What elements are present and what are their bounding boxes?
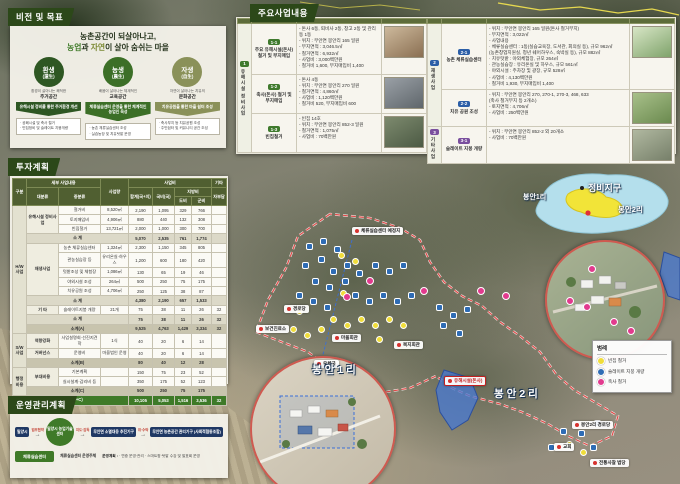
- invest-cell: 5,070: [129, 234, 153, 243]
- invest-cell: 657: [175, 296, 192, 305]
- slate-marker: [436, 304, 443, 311]
- project-subname: 빈집철거: [254, 134, 294, 140]
- map-facility-label: 봉안2리 경로당: [572, 421, 613, 429]
- map-facility-label: 복지회관: [394, 341, 423, 349]
- invest-cell: 1,000: [153, 224, 175, 233]
- invest-cell: 2,300: [129, 243, 153, 252]
- invest-cell: [212, 333, 227, 348]
- vision-columns: 환생(還生)환경이 살아나는 쾌적한주거공간유해시설 정비를 통한 주거환경 개…: [16, 57, 220, 140]
- invest-cell: 1,324㎡: [101, 243, 129, 252]
- ops-bottom: 체류실습센터 체류실습센터 운영주체 운영계획 : · 연중 운영·관리 · 스…: [15, 451, 223, 462]
- slate-marker: [320, 238, 327, 245]
- task-item: · 빈집정비 및 슬레이트 지붕개량: [20, 126, 77, 131]
- invest-cell: 20: [153, 349, 175, 358]
- vacant-marker: [352, 258, 359, 265]
- col-etc: 기타: [212, 179, 227, 188]
- invest-row: 기 타슬레이트지붕 개량21개7538112632: [13, 305, 227, 314]
- ops-flow: 밀양시업무협약→밀양시 농업기술센터지도·감독→무안면 소멸대응 추진기구위·수…: [15, 418, 223, 446]
- ops-operator-note: 체류실습센터 운영주체: [60, 454, 96, 459]
- project-photo-cell: [630, 24, 675, 90]
- invest-cell: 12: [175, 358, 192, 367]
- invest-cell: 180: [175, 252, 192, 267]
- invest-cell: 26: [192, 305, 212, 314]
- invest-cell: [101, 368, 129, 377]
- projects-panel: 1유해시설 정비사업1-1주요 유해시설(돈사) 철거 및 부지매입- 돈사 6…: [236, 17, 676, 154]
- slate-marker: [400, 262, 407, 269]
- pillar-main: 농생: [112, 64, 124, 74]
- flow-arrow: 위·수탁→: [138, 427, 149, 438]
- vacant-marker: [344, 322, 351, 329]
- invest-cell: 19: [175, 268, 192, 277]
- slate-marker: [464, 306, 471, 313]
- pillar-task-list: · 공폐시설 및 축사 철거· 빈집정비 및 슬레이트 지붕개량: [16, 118, 81, 135]
- invest-cell: 소계(C): [27, 386, 129, 395]
- slate-marker: [578, 430, 585, 437]
- vacant-marker: [580, 449, 587, 456]
- invest-cell: 38: [153, 305, 175, 314]
- vacant-marker: [400, 322, 407, 329]
- slate-marker: [296, 292, 303, 299]
- project-photo: [632, 92, 672, 124]
- vision-pillar: 자생(自生)자연이 살아나는 치유의문화공간치유공원을 통한 마을 쉼터 조성·…: [155, 57, 220, 140]
- pillar-space-name: 주거공간: [31, 94, 66, 100]
- col-qty: 사업량: [101, 179, 129, 206]
- minimap-village1-label: 봉안1리: [523, 192, 546, 202]
- legend-item: 빈집 철거: [597, 357, 667, 365]
- invest-cell: H/W 사업: [13, 206, 27, 334]
- vision-pillar-circle: 환생(還生): [34, 57, 64, 87]
- invest-cell: 125: [153, 287, 175, 296]
- invest-cell: 13,721㎡: [101, 224, 129, 233]
- vision-pillar: 농생(農生)배움이 살아나는 체계적인교육공간체류실습센터 운영을 통한 체계적…: [85, 57, 150, 140]
- project-group-name: 기타사업: [430, 137, 436, 159]
- invest-cell: [212, 234, 227, 243]
- barn-marker: [627, 327, 635, 335]
- invest-row: 재생사업농촌 체류실습센터1,324㎡2,3001,150345805: [13, 243, 227, 252]
- invest-row: H/W 사업유해시설 정비사업철거비8,520㎡2,1901,095329766: [13, 206, 227, 215]
- invest-cell: 4,380: [129, 296, 153, 305]
- barn-marker: [566, 297, 574, 305]
- legend-color-dot: [597, 368, 605, 376]
- project-photo: [632, 26, 672, 58]
- pillar-main: 자생: [181, 64, 193, 74]
- project-group-cell: 3기타사업: [428, 126, 442, 163]
- slate-marker: [330, 268, 337, 275]
- ops-plan: 운영계획 : · 연중 운영·관리 · 스마트팜·텃밭 수강 및 발표회 운영: [102, 454, 200, 459]
- invest-cell: 1,533: [192, 296, 212, 305]
- vacant-marker: [372, 322, 379, 329]
- invest-cell: 40: [129, 349, 153, 358]
- invest-row: S/W 사업역량강화사업설명회·선진지견학1식4020614: [13, 333, 227, 348]
- invest-cell: [101, 377, 129, 386]
- village-name-label: 봉안1리: [312, 362, 359, 377]
- pillar-caption: 자연이 살아나는 치유의문화공간: [170, 89, 205, 100]
- invest-panel: 구분 세부 사업내용 사업량 사업비 기타 대분류 중분류 합계(국+지) 국비…: [10, 176, 228, 384]
- slate-marker: [408, 292, 415, 299]
- barn-marker: [420, 287, 428, 295]
- barn-marker: [588, 265, 596, 273]
- project-photo-cell: [630, 126, 675, 163]
- project-details-cell: - 위치 : 무안면 봉안리 852-2 외 20개소- 사업비 : 70백만원: [487, 126, 630, 163]
- invest-cell: 역량강화: [27, 333, 59, 348]
- invest-cell: [212, 243, 227, 252]
- invest-cell: 14: [192, 349, 212, 358]
- slate-marker: [456, 330, 463, 337]
- map-facility-label: 체류실습센터 예정지: [352, 227, 403, 235]
- invest-cell: 관농실습장 등: [59, 252, 101, 267]
- invest-cell: 500: [129, 386, 153, 395]
- invest-cell: 8,520㎡: [101, 206, 129, 215]
- invest-cell: 32: [212, 305, 227, 314]
- project-row: 1-3빈집철거- 빈집 14호- 위치 : 무안면 봉안리 852-3 일원- …: [238, 113, 427, 152]
- invest-cell: 329: [175, 206, 192, 215]
- invest-cell: 운영비: [59, 349, 101, 358]
- invest-cell: 11: [175, 315, 192, 324]
- invest-cell: 1,516: [175, 396, 192, 405]
- invest-cell: 23: [175, 368, 192, 377]
- task-item: · 실습농장 및 치유텃밭 운영: [89, 132, 146, 137]
- flow-arrow: 지도·감독→: [76, 427, 90, 438]
- invest-row: 소 계5,0702,5357611,774: [13, 234, 227, 243]
- invest-cell: 3,334: [192, 324, 212, 333]
- barn-marker: [477, 287, 485, 295]
- invest-cell: 26: [192, 315, 212, 324]
- invest-cell: [212, 368, 227, 377]
- invest-cell: 11: [175, 305, 192, 314]
- project-row: 2재생사업2-1농촌 체류실습센터- 위치 : 무안면 봉안리 165 일원(돈…: [428, 24, 675, 90]
- invest-cell: 175: [192, 386, 212, 395]
- invest-cell: 38: [175, 287, 192, 296]
- legend-color-dot: [597, 357, 605, 365]
- slate-marker: [560, 428, 567, 435]
- invest-cell: 소 계: [27, 296, 129, 305]
- invest-cell: 175: [192, 277, 212, 286]
- project-id-badge: 1-2: [268, 84, 281, 90]
- invest-cell: 유해시설 정비사업: [27, 206, 59, 234]
- invest-cell: 75: [175, 386, 192, 395]
- project-photo: [384, 77, 424, 109]
- flow-agency-circle: 밀양시 농업기술센터: [46, 418, 74, 446]
- project-detail-line: · 철거비 1,930, 부지매입비 1,400: [489, 81, 627, 87]
- invest-cell: 132: [175, 215, 192, 224]
- invest-cell: 거버넌스: [27, 349, 59, 358]
- pillar-sub: (農生): [112, 74, 124, 80]
- minimap-village2-label: 봉안2리: [618, 204, 643, 215]
- project-id-badge: 3-1: [458, 138, 471, 144]
- invest-cell: 소 계: [27, 315, 129, 324]
- invest-cell: 사업설명회·선진지견학: [59, 333, 101, 348]
- slate-marker: [440, 322, 447, 329]
- slate-marker: [342, 278, 349, 285]
- arrow-right-icon: →: [140, 432, 146, 438]
- invest-cell: 87: [192, 287, 212, 296]
- slate-marker: [590, 444, 597, 451]
- slate-marker: [312, 278, 319, 285]
- project-subname-cell: 1-1주요 유해시설(돈사) 철거 및 부지매입: [252, 24, 297, 74]
- slate-marker: [306, 243, 313, 250]
- project-group-badge: 3: [430, 129, 439, 135]
- map-facility-label: 경로당: [284, 305, 309, 313]
- invest-cell: 52: [175, 377, 192, 386]
- project-row: 1-2축사(돈사) 철거 및 부지매입- 돈사 4동- 위치 : 무안면 봉안리…: [238, 74, 427, 113]
- tab-vision: 비전 및 목표: [8, 8, 74, 26]
- invest-cell: [212, 296, 227, 305]
- slate-marker: [356, 270, 363, 277]
- minimap-district-label: 정비지구: [588, 181, 621, 194]
- project-photo-cell: [382, 74, 427, 113]
- vacant-marker: [376, 336, 383, 343]
- slate-marker: [372, 262, 379, 269]
- vacant-marker: [330, 316, 337, 323]
- project-subname-cell: 3-1슬레이트 지붕 개량: [442, 126, 487, 163]
- slate-marker: [394, 298, 401, 305]
- legend-color-dot: [597, 378, 605, 386]
- invest-cell: 40: [153, 358, 175, 367]
- invest-cell: [212, 224, 227, 233]
- invest-cell: 2,190: [153, 296, 175, 305]
- vision-pillar: 환생(還生)환경이 살아나는 쾌적한주거공간유해시설 정비를 통한 주거환경 개…: [16, 57, 81, 140]
- ops-center-box: 체류실습센터: [15, 451, 54, 462]
- project-details-cell: - 돈사 6동, 퇴비사 2동, 창고 2동 및 관리동 1동- 위치 : 무안…: [297, 24, 382, 74]
- invest-cell: 75: [175, 277, 192, 286]
- invest-cell: 32: [212, 315, 227, 324]
- pillar-task-list: · 축사부지 등 치유공원 조성· 주민쉼터 및 커뮤니티 공간 조성: [155, 118, 220, 135]
- invest-row: 소계(B)80401228: [13, 358, 227, 367]
- project-detail-line: - 사업비 : 250백만원: [489, 110, 627, 116]
- invest-cell: 야외시설 조성: [59, 277, 101, 286]
- invest-cell: 4,763: [153, 324, 175, 333]
- vision-pillar-circle: 농생(農生): [103, 57, 133, 87]
- slate-marker: [366, 298, 373, 305]
- barn-marker: [610, 318, 618, 326]
- arrow-right-icon: →: [80, 432, 86, 438]
- project-photo-cell: [630, 89, 675, 126]
- col-detail: 세부 사업내용: [27, 179, 101, 188]
- slate-marker: [326, 284, 333, 291]
- project-group-cell: 1유해시설 정비사업: [238, 24, 252, 153]
- arrow-right-icon: →: [35, 432, 41, 438]
- invest-cell: 마을법인 운영: [101, 349, 129, 358]
- vacant-marker: [290, 326, 297, 333]
- project-group-badge: 2: [430, 60, 439, 66]
- invest-cell: 28: [192, 358, 212, 367]
- project-details-cell: - 돈사 4동- 위치 : 무안면 봉안리 270 일원- 철거면적 : 4,8…: [297, 74, 382, 113]
- pillar-strategy-arrow: 유해시설 정비를 통한 주거환경 개선: [16, 102, 81, 116]
- slate-marker: [352, 292, 359, 299]
- slate-marker: [386, 268, 393, 275]
- project-photo: [632, 129, 672, 161]
- project-details-cell: - 위치 : 무안면 봉안리 165 일원(돈사 철거부지)- 부지면적 : 3…: [487, 24, 630, 90]
- invest-cell: 6: [175, 349, 192, 358]
- barn-marker: [583, 303, 591, 311]
- col-dae: 대분류: [27, 188, 59, 206]
- invest-cell: 5,053: [153, 396, 175, 405]
- invest-cell: 유리온실·하우스: [101, 252, 129, 267]
- invest-cell: 2,190: [129, 206, 153, 215]
- invest-cell: 250: [153, 277, 175, 286]
- vacant-marker: [358, 316, 365, 323]
- invest-row: 소계(C)50025075175: [13, 386, 227, 395]
- invest-cell: 1,429: [175, 324, 192, 333]
- invest-cell: 빈집철거: [59, 224, 101, 233]
- flow-agency-box: 무안면 농촌공간 관리기구 (사회적협동조합): [150, 427, 223, 438]
- vision-title: 농촌공간이 되살아나고, 농업과 자연이 살아 숨쉬는 마을: [16, 32, 220, 53]
- invest-cell: [212, 268, 227, 277]
- invest-cell: 부대비용: [27, 368, 59, 387]
- invest-cell: 1,200: [129, 252, 153, 267]
- flow-agency-box: 밀양시: [15, 427, 29, 438]
- invest-cell: 264㎡: [101, 277, 129, 286]
- invest-cell: 350: [129, 377, 153, 386]
- col-jung: 중분류: [59, 188, 101, 206]
- project-detail-line: - 돈사 6동, 퇴비사 2동, 창고 2동 및 관리동 1동: [299, 26, 379, 38]
- project-group-badge: 1: [240, 61, 249, 67]
- invest-cell: 기본계획: [59, 368, 101, 377]
- invest-row: 행정 비용부대비용기본계획150752352: [13, 368, 227, 377]
- vision-pillar-circle: 자생(自生): [172, 57, 202, 87]
- location-minimap: 봉안1리 정비지구 봉안2리: [522, 166, 674, 238]
- col-nat: 국비(국): [153, 188, 175, 206]
- project-id-badge: 1-3: [268, 126, 281, 132]
- projects-table-left: 1유해시설 정비사업1-1주요 유해시설(돈사) 철거 및 부지매입- 돈사 6…: [237, 18, 427, 153]
- invest-cell: 75: [153, 368, 175, 377]
- invest-cell: 38: [153, 315, 175, 324]
- invest-cell: [212, 358, 227, 367]
- invest-cell: 10,105: [129, 396, 153, 405]
- project-subname: 치유 공원 조성: [444, 109, 484, 115]
- invest-cell: 80: [129, 358, 153, 367]
- invest-cell: 텃밭조성 및 체험장: [59, 268, 101, 277]
- legend-items: 빈집 철거슬레이트 지붕 개량축사 철거: [597, 357, 667, 386]
- project-row: 3기타사업3-1슬레이트 지붕 개량- 위치 : 무안면 봉안리 852-2 외…: [428, 126, 675, 163]
- invest-cell: 20: [153, 333, 175, 348]
- invest-cell: 420: [192, 252, 212, 267]
- map-facility-label: 마을회관: [332, 334, 361, 342]
- slate-marker: [324, 304, 331, 311]
- legend-title: 범례: [597, 344, 667, 355]
- vision-title-line2: 농업과 자연이 살아 숨쉬는 마을: [16, 43, 220, 54]
- barn-marker: [502, 292, 510, 300]
- project-photo-cell: [382, 24, 427, 74]
- invest-cell: 1,086㎡: [101, 268, 129, 277]
- invest-cell: 308: [192, 215, 212, 224]
- invest-cell: 기 타: [27, 305, 59, 314]
- invest-cell: 500: [129, 277, 153, 286]
- invest-cell: 700: [192, 224, 212, 233]
- ops-panel: 밀양시업무협약→밀양시 농업기술센터지도·감독→무안면 소멸대응 추진기구위·수…: [10, 414, 228, 478]
- invest-cell: 재생사업: [27, 243, 59, 296]
- invest-cell: 2,000: [129, 224, 153, 233]
- project-subname-cell: 2-1농촌 체류실습센터: [442, 24, 487, 90]
- barn-marker: [366, 277, 374, 285]
- pillar-strategy-arrow: 체류실습센터 운영을 통한 체계적인 농업인 육성: [85, 102, 150, 122]
- invest-cell: 250: [129, 287, 153, 296]
- project-subname-cell: 2-2치유 공원 조성: [442, 89, 487, 126]
- invest-cell: 52: [192, 368, 212, 377]
- slate-marker: [302, 262, 309, 269]
- invest-cell: 1,774: [192, 234, 212, 243]
- invest-row: 거버넌스운영비마을법인 운영4020614: [13, 349, 227, 358]
- legend-label: 슬레이트 지붕 개량: [608, 369, 644, 375]
- project-photo-cell: [382, 113, 427, 152]
- invest-header: 구분 세부 사업내용 사업량 사업비 기타 대분류 중분류 합계(국+지) 국비…: [13, 179, 227, 206]
- pillar-sub: (還生): [43, 74, 55, 80]
- project-details-cell: - 빈집 14호- 위치 : 무안면 봉안리 852-3 일원- 철거면적 : …: [297, 113, 382, 152]
- invest-cell: 150: [129, 368, 153, 377]
- project-details-cell: - 위치 : 무안면 봉안리 270, 270-1, 270-3, 468, 6…: [487, 89, 630, 126]
- legend-item: 슬레이트 지붕 개량: [597, 368, 667, 376]
- invest-row: 소 계4,3802,1906571,533: [13, 296, 227, 305]
- col-cost: 사업비: [129, 179, 212, 188]
- invest-cell: 75: [129, 305, 153, 314]
- pillar-task-list: · 농촌 체류실습센터 조성· 실습농장 및 치유텃밭 운영: [85, 123, 150, 140]
- invest-cell: 실시설계·감리비 등: [59, 377, 101, 386]
- invest-cell: 175: [153, 377, 175, 386]
- project-subname: 주요 유해시설(돈사) 철거 및 부지매입: [254, 47, 294, 58]
- invest-cell: 123: [192, 377, 212, 386]
- invest-cell: 21개: [101, 305, 129, 314]
- village-name-label: 봉안2리: [494, 386, 541, 401]
- slate-marker: [344, 262, 351, 269]
- map-facility-label: 교회: [554, 443, 574, 451]
- project-subname: 축사(돈사) 철거 및 부지매입: [254, 92, 294, 103]
- slate-marker: [318, 256, 325, 263]
- project-id-badge: 1-1: [268, 39, 281, 45]
- invest-cell: 농촌 체류실습센터: [59, 243, 101, 252]
- vision-panel: 농촌공간이 되살아나고, 농업과 자연이 살아 숨쉬는 마을 환생(還生)환경이…: [10, 26, 226, 148]
- project-subname-cell: 1-3빈집철거: [252, 113, 297, 152]
- invest-cell: 880: [129, 215, 153, 224]
- invest-cell: 철거비: [59, 206, 101, 215]
- projects-left-body: 1유해시설 정비사업1-1주요 유해시설(돈사) 철거 및 부지매입- 돈사 6…: [238, 19, 427, 153]
- invest-cell: 토지매입비: [59, 215, 101, 224]
- legend-item: 축사 철거: [597, 378, 667, 386]
- invest-cell: [212, 206, 227, 215]
- pillar-caption: 배움이 살아나는 체계적인교육공간: [99, 89, 137, 100]
- legend-label: 빈집 철거: [608, 358, 626, 364]
- invest-cell: [212, 349, 227, 358]
- project-id-badge: 2-1: [458, 49, 471, 55]
- slate-marker: [380, 292, 387, 299]
- invest-cell: 250: [153, 386, 175, 395]
- vacant-marker: [304, 332, 311, 339]
- invest-cell: 65: [153, 268, 175, 277]
- col-do: 도비: [175, 197, 192, 206]
- invest-cell: [212, 252, 227, 267]
- project-subname-cell: 1-2축사(돈사) 철거 및 부지매입: [252, 74, 297, 113]
- project-photo: [384, 26, 424, 58]
- invest-cell: 345: [175, 243, 192, 252]
- map-facility-label: 전통사찰 법당: [590, 459, 629, 467]
- project-id-badge: 2-2: [458, 101, 471, 107]
- invest-cell: [212, 287, 227, 296]
- tab-ops: 운영관리계획: [8, 396, 77, 414]
- tab-projects: 주요사업내용: [250, 4, 319, 22]
- project-detail-line: - 사업비 : 70백만원: [299, 134, 379, 140]
- invest-table: 구분 세부 사업내용 사업량 사업비 기타 대분류 중분류 합계(국+지) 국비…: [12, 178, 227, 406]
- invest-cell: 2,535: [153, 234, 175, 243]
- col-self: 자부담: [212, 188, 227, 206]
- invest-cell: 1,095: [153, 206, 175, 215]
- flow-agency-box: 무안면 소멸대응 추진기구: [91, 427, 136, 438]
- invest-cell: 46: [192, 268, 212, 277]
- invest-cell: 40: [129, 333, 153, 348]
- vision-title-line1: 농촌공간이 되살아나고,: [16, 32, 220, 43]
- project-detail-line: · 철거비 520, 부지매입비 600: [299, 101, 379, 107]
- projects-table-right: 2재생사업2-1농촌 체류실습센터- 위치 : 무안면 봉안리 165 일원(돈…: [427, 18, 675, 164]
- invest-row: 소계(A)9,5254,7631,4293,33432: [13, 324, 227, 333]
- barn-marker: [343, 293, 351, 301]
